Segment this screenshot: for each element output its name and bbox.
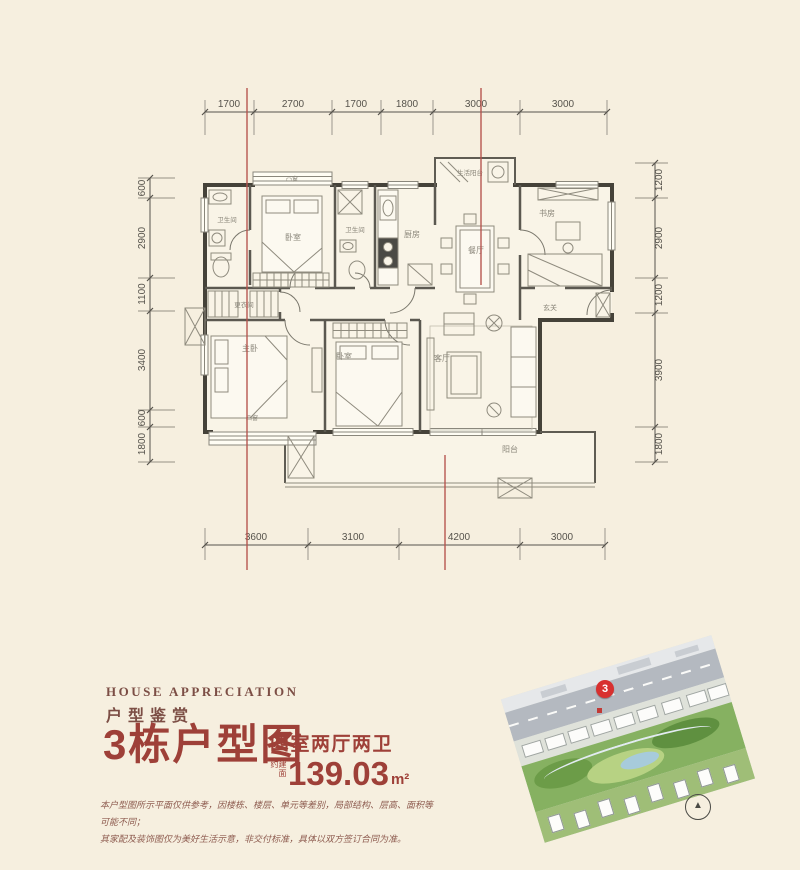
section-eyebrow-english: HOUSE APPRECIATION <box>106 684 298 700</box>
room-label-master: 主卧 <box>242 343 258 353</box>
disclaimer-text: 本户型图所示平面仅供参考，因楼栋、楼层、单元等差别，局部结构、层高、面积等可能不… <box>100 797 440 848</box>
area-unit: m² <box>391 771 409 788</box>
aerial-map-image <box>501 635 755 843</box>
map-building <box>521 740 544 758</box>
room-label-bedroom-top: 卧室 <box>285 232 301 242</box>
dim-top-4: 1800 <box>396 99 419 110</box>
room-label-balcony: 阳台 <box>502 444 518 454</box>
room-label-dressing: 更衣间 <box>234 300 254 309</box>
dim-right-2: 2900 <box>654 226 665 249</box>
disclaimer-line-1: 本户型图所示平面仅供参考，因楼栋、楼层、单元等差别，局部结构、层高、面积等可能不… <box>100 797 440 831</box>
dim-bottom-4: 3000 <box>551 532 574 543</box>
map-building <box>686 689 709 707</box>
building-3-dot <box>597 708 602 713</box>
dim-right-4: 3900 <box>654 358 665 381</box>
area-prefix-label: 建面约 <box>270 760 286 786</box>
dim-left-2: 2900 <box>137 226 148 249</box>
room-label-service-balcony: 生活阳台 <box>457 168 483 177</box>
dim-bottom-1: 3600 <box>245 532 268 543</box>
room-label-bath1: 卫生间 <box>217 215 237 224</box>
room-label-kitchen: 厨房 <box>404 229 420 239</box>
dim-left-3: 1100 <box>137 283 148 305</box>
dim-left-1: 600 <box>137 179 148 196</box>
dim-bottom-3: 4200 <box>448 532 471 543</box>
unit-spec: 四室两厅两卫 建面约 139.03 m² <box>270 729 409 790</box>
map-building <box>636 705 659 723</box>
dim-right-3: 1200 <box>654 283 665 306</box>
map-tower <box>647 783 664 803</box>
dim-top-2: 2700 <box>282 99 305 110</box>
map-tower <box>547 813 564 833</box>
north-arrow-icon: ▲ <box>685 794 711 820</box>
map-tower <box>722 764 739 784</box>
room-label-bay-top: 凸窗 <box>286 175 298 183</box>
map-building <box>567 726 590 744</box>
dim-top-1: 1700 <box>218 99 241 110</box>
dim-top-6: 3000 <box>552 99 575 110</box>
dim-bottom-2: 3100 <box>342 532 365 543</box>
map-building <box>544 733 567 751</box>
dim-left-6: 1800 <box>137 432 148 455</box>
building-3-marker: 3 <box>596 680 614 698</box>
map-tower <box>573 809 590 829</box>
unit-layout-label: 四室两厅两卫 <box>270 729 409 756</box>
map-building <box>661 697 684 715</box>
disclaimer-line-2: 其家配及装饰图仅为美好生活示意，非交付标准，具体以双方签订合同为准。 <box>100 831 440 848</box>
map-building <box>613 712 636 730</box>
dim-left-5: 600 <box>137 409 148 426</box>
map-building <box>590 719 613 737</box>
room-label-bath2: 卫生间 <box>345 225 365 234</box>
map-building <box>707 683 730 701</box>
dim-top-5: 3000 <box>465 99 488 110</box>
map-tower <box>623 795 640 815</box>
unit-area: 建面约 139.03 m² <box>270 757 409 790</box>
room-label-living: 客厅 <box>434 353 450 363</box>
area-value: 139.03 <box>288 757 389 790</box>
room-label-study: 书房 <box>539 208 555 218</box>
page: 凸窗 卧室 卫生间 卫生间 厨房 餐厅 生活阳台 书房 玄关 更衣间 主卧 卧室… <box>0 0 800 870</box>
dim-right-5: 1800 <box>654 432 665 455</box>
dim-right-1: 1200 <box>654 168 665 191</box>
floor-plan: 凸窗 卧室 卫生间 卫生间 厨房 餐厅 生活阳台 书房 玄关 更衣间 主卧 卧室… <box>90 80 710 610</box>
map-tower <box>673 779 690 799</box>
dim-top-3: 1700 <box>345 99 368 110</box>
site-location-map: 3 ▲ <box>514 642 764 857</box>
map-tower <box>597 798 614 818</box>
map-tower <box>696 768 713 788</box>
room-label-bedroom2: 卧室 <box>336 351 352 361</box>
dim-left-4: 3400 <box>137 348 148 371</box>
room-label-entry: 玄关 <box>543 303 557 312</box>
